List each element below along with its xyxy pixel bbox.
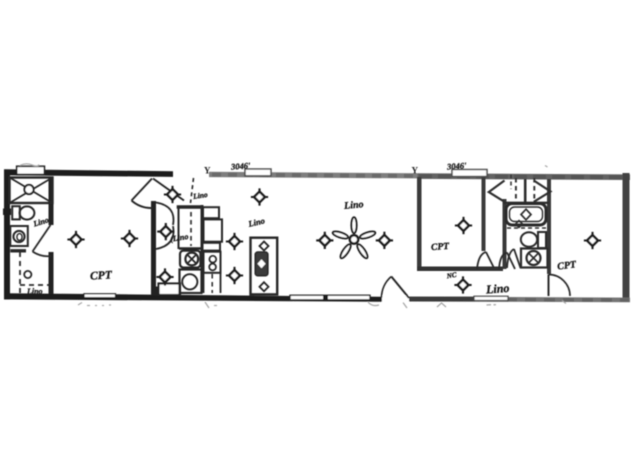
svg-text:Y: Y (412, 166, 419, 176)
svg-text:CPT: CPT (431, 242, 451, 253)
svg-text:3046': 3046' (230, 160, 252, 171)
svg-text:Lino: Lino (485, 281, 510, 297)
svg-text:Y: Y (204, 166, 211, 176)
svg-text:Lino: Lino (26, 287, 43, 296)
svg-text:NC: NC (445, 271, 457, 281)
svg-text:CPT: CPT (90, 269, 113, 282)
svg-text:3046': 3046' (446, 160, 468, 171)
svg-text:Lino: Lino (343, 199, 364, 212)
